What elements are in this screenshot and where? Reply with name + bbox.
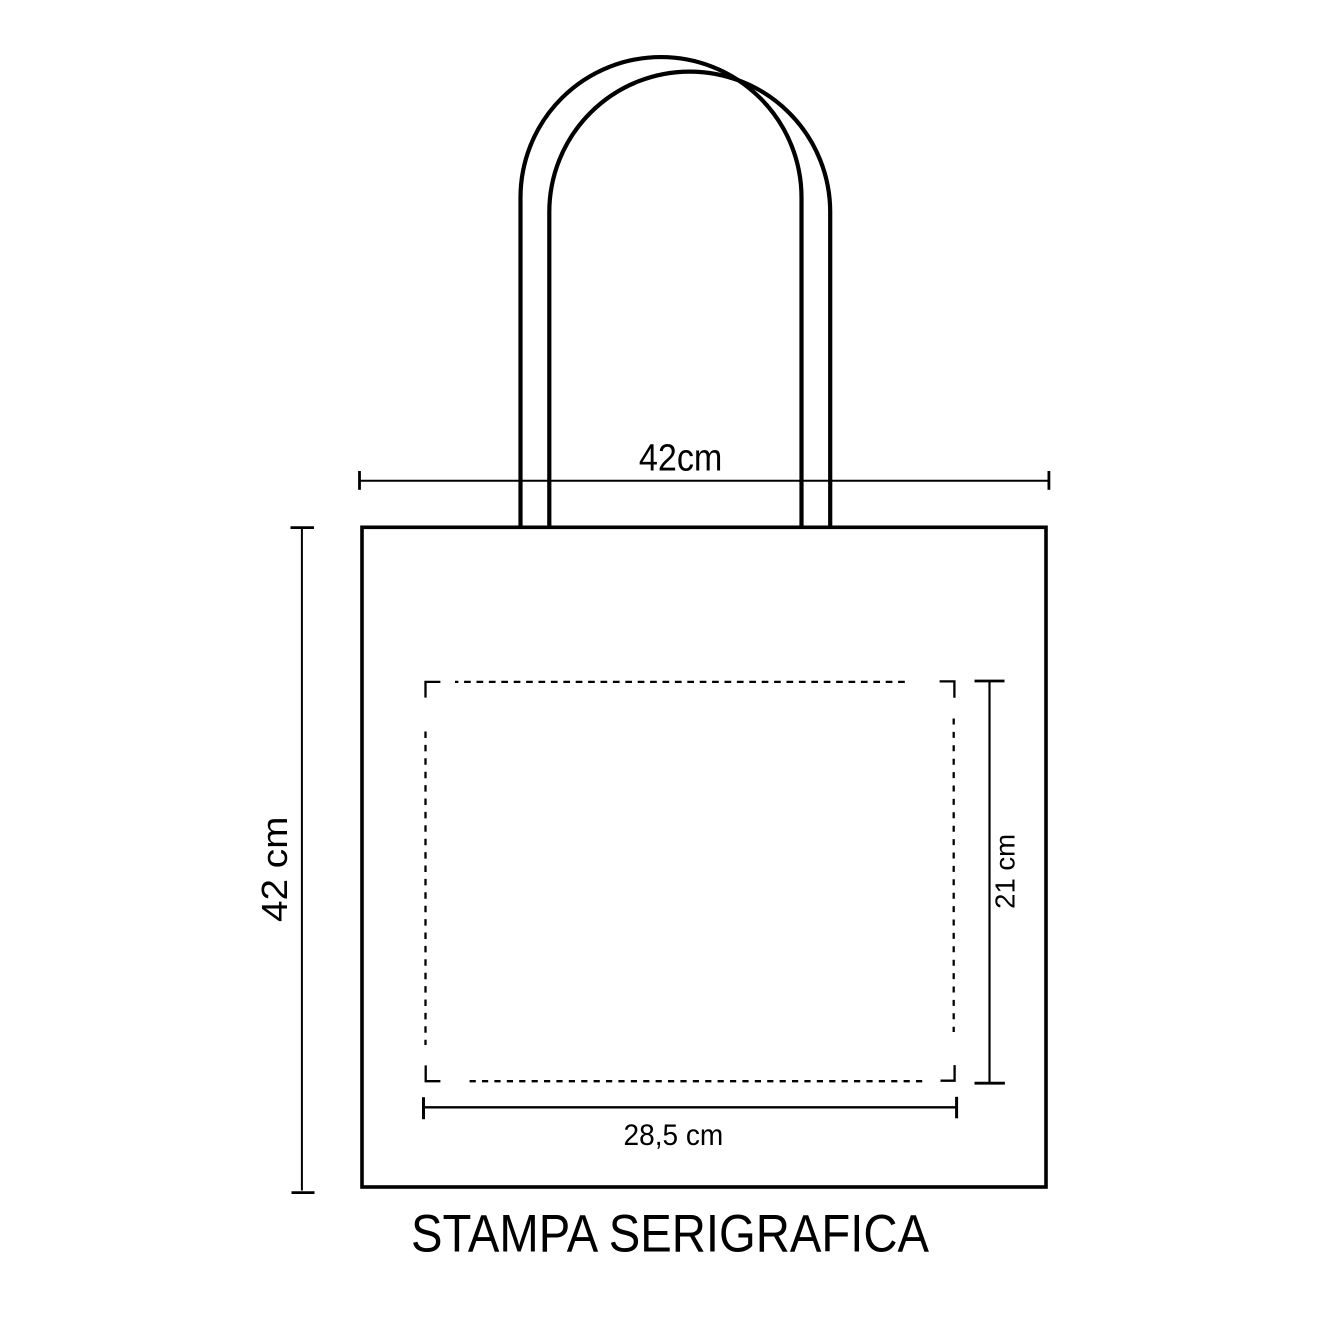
svg-text:42 cm: 42 cm: [254, 817, 295, 923]
svg-text:42cm: 42cm: [639, 437, 723, 479]
svg-text:28,5 cm: 28,5 cm: [624, 1119, 724, 1152]
svg-text:STAMPA SERIGRAFICA: STAMPA SERIGRAFICA: [411, 1205, 929, 1264]
svg-text:21 cm: 21 cm: [989, 834, 1020, 909]
